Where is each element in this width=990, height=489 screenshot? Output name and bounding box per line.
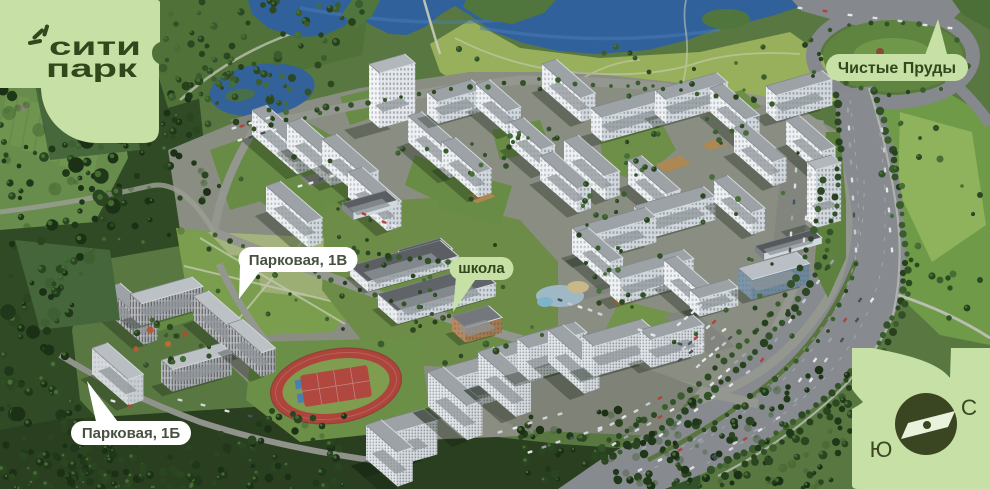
svg-text:Парковая, 1В: Парковая, 1В xyxy=(249,252,348,269)
svg-text:С: С xyxy=(961,395,977,420)
svg-text:парк: парк xyxy=(46,55,138,83)
svg-text:школа: школа xyxy=(458,260,505,277)
svg-text:Парковая, 1Б: Парковая, 1Б xyxy=(82,425,181,442)
svg-text:Ю: Ю xyxy=(870,437,893,462)
svg-text:Чистые Пруды: Чистые Пруды xyxy=(838,60,956,77)
